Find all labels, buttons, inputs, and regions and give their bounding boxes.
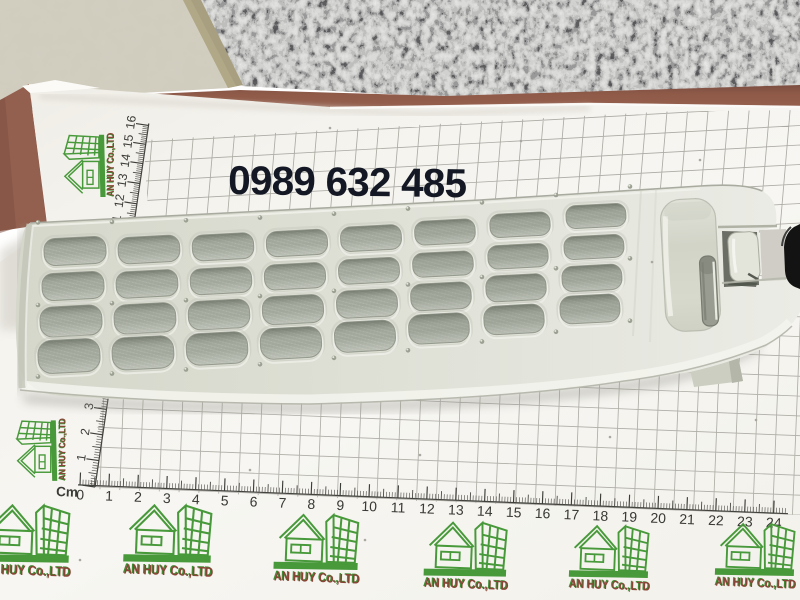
svg-text:17: 17	[563, 506, 579, 523]
svg-text:6: 6	[249, 493, 258, 509]
svg-text:4: 4	[192, 491, 201, 507]
svg-text:20: 20	[650, 510, 666, 527]
svg-text:12: 12	[419, 500, 435, 517]
svg-text:2: 2	[134, 489, 143, 505]
svg-text:15: 15	[506, 504, 522, 521]
svg-text:1: 1	[105, 488, 114, 504]
svg-text:8: 8	[307, 496, 316, 512]
svg-text:14: 14	[477, 503, 493, 520]
svg-text:21: 21	[679, 511, 695, 528]
svg-text:15: 15	[120, 133, 136, 149]
svg-text:3: 3	[163, 490, 172, 506]
svg-text:16: 16	[123, 114, 139, 130]
svg-text:22: 22	[708, 512, 724, 529]
svg-text:9: 9	[336, 497, 345, 513]
svg-text:Cm: Cm	[56, 484, 78, 500]
svg-text:18: 18	[592, 507, 608, 524]
svg-text:11: 11	[391, 499, 406, 516]
svg-text:13: 13	[448, 501, 464, 518]
svg-text:10: 10	[361, 498, 377, 515]
svg-text:7: 7	[278, 495, 287, 511]
svg-text:19: 19	[621, 508, 637, 525]
svg-text:14: 14	[118, 153, 134, 169]
svg-text:16: 16	[534, 505, 550, 522]
svg-text:5: 5	[220, 492, 229, 508]
svg-text:0989 632 485: 0989 632 485	[228, 157, 467, 206]
